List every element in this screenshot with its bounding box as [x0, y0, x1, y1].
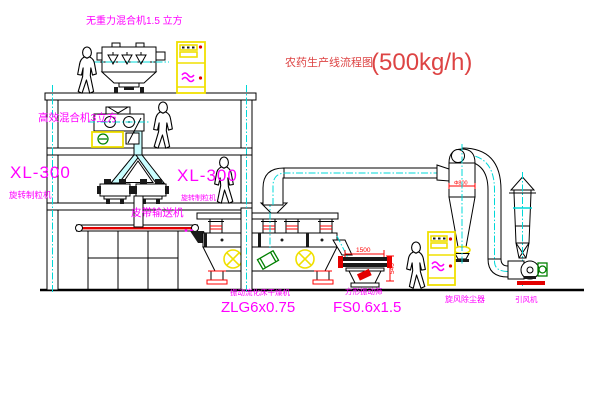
fan-base — [517, 281, 545, 285]
label-belt-conveyor: 皮带输送机 — [131, 206, 184, 219]
dryer-port — [261, 219, 277, 233]
label-screen-model: FS0.6x1.5 — [333, 299, 401, 316]
worker-figure — [154, 102, 173, 148]
indicator-light — [449, 264, 452, 267]
worker-figure — [78, 47, 97, 93]
cyclone-inlet — [437, 165, 449, 181]
cad-drawing: Φ800 — [0, 0, 600, 403]
control-cabinet-2 — [428, 232, 455, 285]
y-chute — [111, 155, 164, 183]
fluid-bed-dryer — [197, 200, 338, 284]
label-granulator-right-name: 旋转制粒机 — [181, 193, 216, 202]
label-granulator-right-model: XL-300 — [177, 166, 238, 185]
label-high-efficiency-mixer: 高效混合机3立方 — [38, 111, 117, 124]
label-gravity-free-mixer: 无重力混合机1.5 立方 — [86, 14, 183, 27]
exhaust-duct — [263, 168, 437, 205]
indicator-light — [199, 76, 202, 79]
screen-length-text: 1500 — [356, 247, 371, 254]
induced-draft-fan — [508, 261, 547, 285]
indicator-light — [199, 45, 202, 48]
control-cabinet-1 — [177, 42, 205, 93]
label-dryer-name: 振动流化床干燥机 — [230, 287, 290, 297]
drawing-title: 农药生产线流程图 — [285, 55, 373, 69]
dryer-port — [208, 219, 224, 233]
label-dryer-model: ZLG6x0.75 — [221, 299, 295, 316]
indicator-light — [449, 237, 452, 240]
dryer-port — [318, 219, 334, 233]
label-cyclone: 旋风除尘器 — [445, 294, 485, 304]
label-granulator-left-name: 旋转制粒机 — [9, 190, 52, 200]
belt-conveyor — [76, 225, 209, 290]
fan-motor-icon — [538, 263, 547, 276]
dryer-port — [284, 219, 300, 233]
flow-diagram-svg: Φ800 — [0, 0, 600, 403]
conveyor-marker — [185, 229, 188, 232]
label-fan: 引风机 — [515, 294, 538, 304]
cyclone-dim-text: Φ800 — [454, 181, 468, 187]
dryer-foot — [207, 271, 227, 284]
screen-height-text: 540 — [389, 263, 396, 274]
gravity-free-mixer — [93, 43, 169, 93]
drawing-capacity: (500kg/h) — [371, 49, 472, 76]
label-granulator-left-model: XL-300 — [10, 163, 71, 182]
label-screen-name: 方形振动筛 — [345, 286, 383, 296]
vibrating-screen: 1500 540 — [333, 236, 396, 287]
worker-figure — [407, 242, 426, 288]
dryer-foot — [313, 271, 333, 284]
